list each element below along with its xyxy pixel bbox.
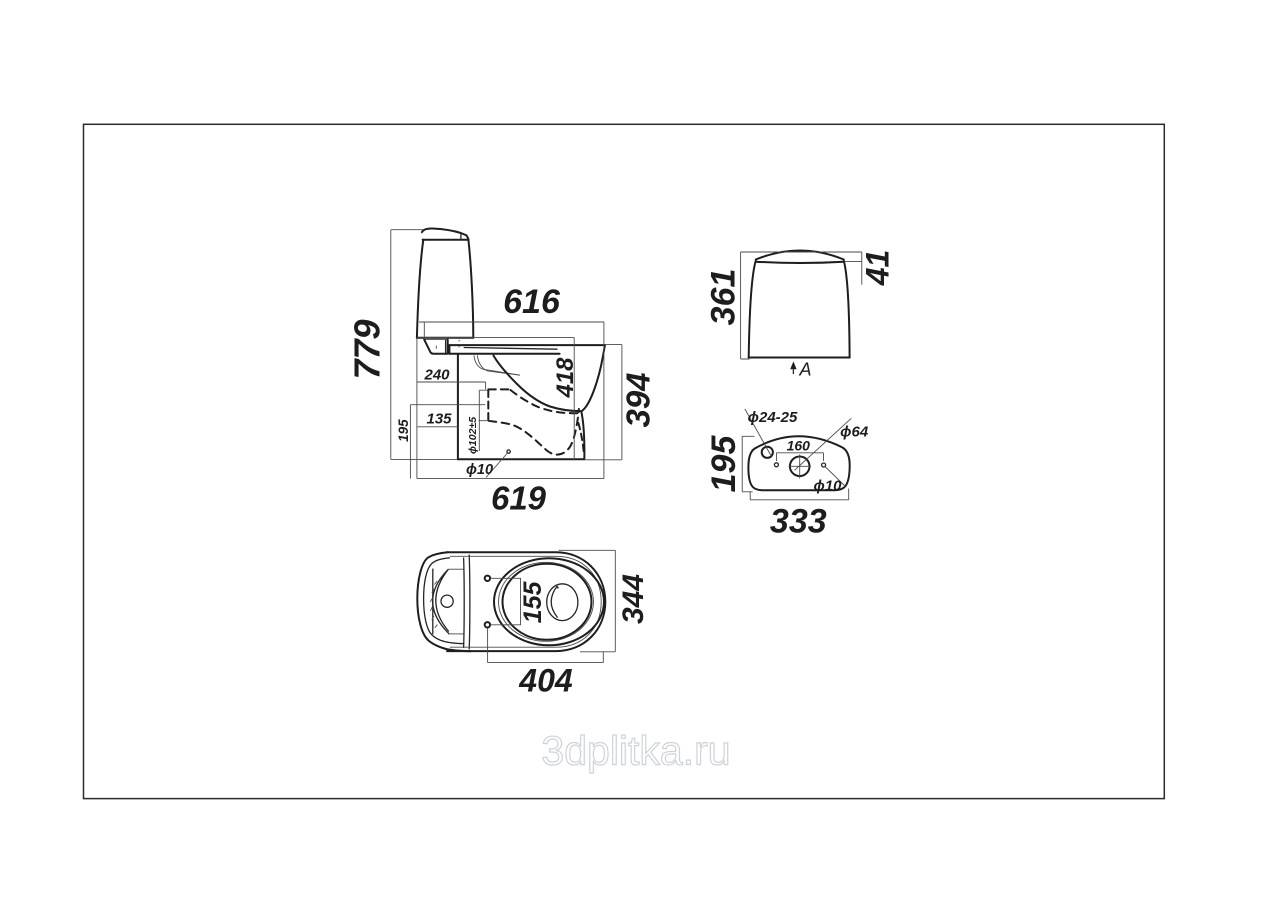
svg-text:195: 195 bbox=[396, 419, 411, 442]
svg-text:240: 240 bbox=[423, 367, 450, 384]
svg-text:135: 135 bbox=[426, 410, 452, 427]
svg-text:394: 394 bbox=[620, 372, 657, 427]
svg-text:160: 160 bbox=[787, 437, 811, 453]
svg-text:41: 41 bbox=[860, 250, 896, 287]
svg-text:ϕ24-25: ϕ24-25 bbox=[748, 409, 798, 426]
svg-text:155: 155 bbox=[519, 580, 547, 623]
svg-text:344: 344 bbox=[617, 574, 650, 624]
svg-text:404: 404 bbox=[518, 663, 573, 699]
svg-text:619: 619 bbox=[491, 480, 547, 517]
svg-text:418: 418 bbox=[552, 357, 579, 399]
svg-text:ϕ10: ϕ10 bbox=[466, 462, 493, 478]
svg-text:195: 195 bbox=[705, 435, 743, 493]
svg-text:616: 616 bbox=[503, 283, 561, 321]
svg-text:3dplitka.ru: 3dplitka.ru bbox=[541, 728, 730, 774]
svg-text:361: 361 bbox=[704, 269, 742, 326]
svg-text:779: 779 bbox=[347, 319, 388, 379]
svg-text:333: 333 bbox=[770, 503, 827, 541]
svg-text:ϕ102±5: ϕ102±5 bbox=[467, 417, 479, 454]
svg-text:ϕ10: ϕ10 bbox=[813, 478, 842, 495]
svg-text:ϕ64: ϕ64 bbox=[840, 424, 869, 441]
svg-text:A: A bbox=[798, 360, 811, 380]
